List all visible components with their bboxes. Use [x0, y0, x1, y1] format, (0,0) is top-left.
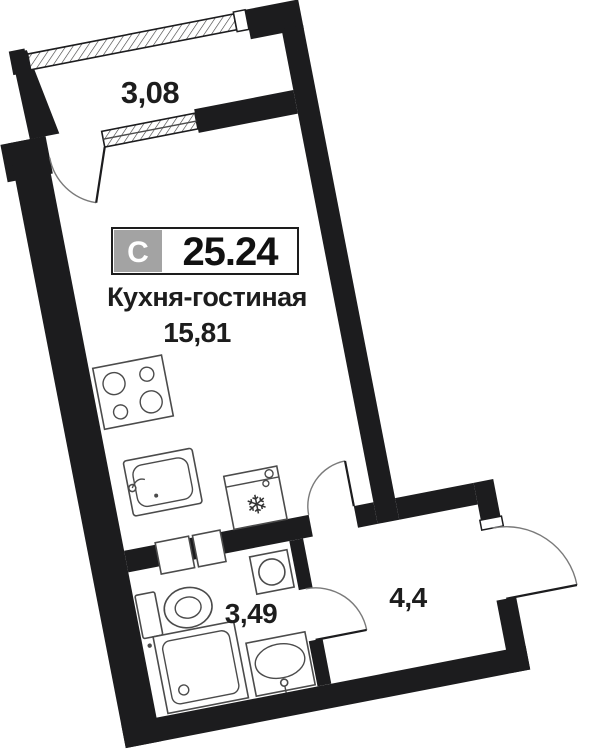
floor-plan-page: ❄ 3,08: [0, 0, 600, 750]
door-leaf: [316, 630, 367, 640]
wash-basin-icon: [246, 632, 316, 698]
kitchen-sink-icon: [123, 448, 202, 516]
balcony-window: [102, 113, 198, 147]
wall: [354, 502, 378, 527]
unit-badge: С 25.24: [112, 228, 298, 274]
total-area-value: 25.24: [182, 230, 279, 274]
shower-icon: [153, 621, 248, 713]
entrance-door: [493, 514, 577, 598]
hallway-top-wall: [395, 483, 478, 520]
bathroom-area-label: 3,49: [225, 598, 278, 629]
floor-plan-svg: ❄ 3,08: [0, 0, 600, 750]
balcony-door: [50, 147, 115, 210]
washing-machine-icon: [250, 550, 295, 595]
unit-type-letter: С: [127, 236, 149, 269]
room-name-label: Кухня-гостиная: [107, 282, 307, 312]
stove-icon: [93, 355, 174, 429]
plan-geometry: ❄: [0, 0, 591, 750]
door-leaf: [345, 461, 354, 506]
door-leaf: [86, 147, 115, 203]
hallway-area-label: 4,4: [389, 582, 427, 613]
door-leaf: [506, 585, 577, 599]
kitchen-living-area-label: 15,81: [163, 317, 231, 348]
balcony-partition-wall: [194, 90, 298, 133]
bathroom-door: [306, 579, 367, 640]
balcony-area-label: 3,08: [121, 75, 180, 110]
room-hall-door: [300, 461, 354, 515]
door-swing-arc: [50, 151, 96, 210]
door-swing-arc: [493, 514, 577, 598]
shaft-boxes: [155, 530, 226, 574]
walls: [0, 0, 531, 750]
right-wall: [281, 25, 399, 524]
fridge-icon: ❄: [224, 466, 287, 529]
balcony-glazing: [28, 14, 237, 70]
